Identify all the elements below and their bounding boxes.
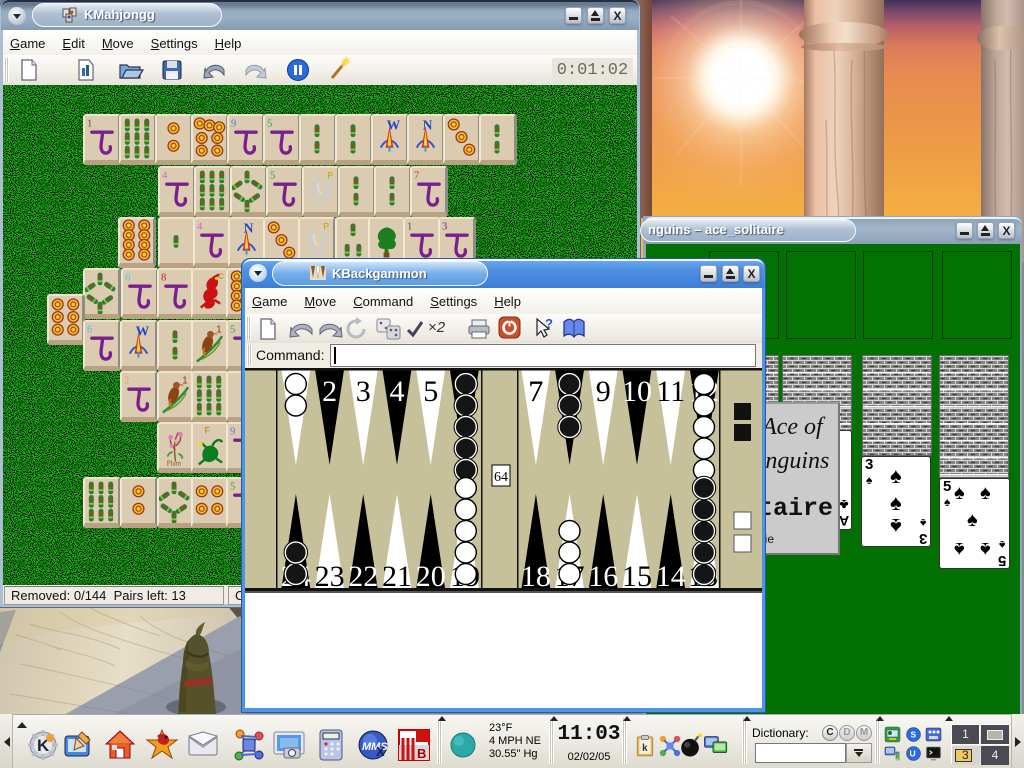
svg-text:C: C (218, 271, 224, 280)
svg-text:W: W (136, 323, 150, 338)
svg-text:U: U (910, 749, 916, 759)
svg-text:6: 6 (125, 271, 131, 283)
svg-text:4: 4 (162, 169, 168, 181)
svg-text:k: k (642, 743, 648, 754)
svg-text:7: 7 (414, 169, 420, 181)
svg-text:Plum: Plum (167, 460, 182, 467)
svg-text:5: 5 (423, 375, 438, 408)
svg-text:5: 5 (230, 323, 235, 335)
svg-text:N: N (423, 117, 433, 132)
svg-text:4: 4 (197, 220, 203, 232)
svg-text:18: 18 (521, 560, 551, 591)
svg-text:5: 5 (267, 117, 272, 129)
svg-text:P: P (323, 221, 329, 231)
svg-text:21: 21 (382, 560, 412, 591)
svg-text:1: 1 (87, 117, 92, 129)
svg-text:10: 10 (622, 375, 652, 408)
svg-text:23: 23 (315, 560, 345, 591)
svg-text:14: 14 (656, 560, 686, 591)
svg-text:4: 4 (390, 375, 405, 408)
svg-text:6: 6 (87, 323, 93, 335)
svg-text:S: S (911, 730, 917, 740)
svg-text:?: ? (545, 316, 553, 331)
svg-text:20: 20 (416, 560, 446, 591)
svg-text:9: 9 (596, 375, 611, 408)
svg-text:3: 3 (356, 375, 371, 408)
svg-text:11: 11 (656, 375, 685, 408)
svg-text:B: B (417, 746, 426, 761)
svg-text:5: 5 (270, 169, 275, 181)
svg-text:2: 2 (124, 374, 129, 386)
svg-text:P: P (327, 170, 333, 180)
svg-text:5: 5 (230, 480, 235, 492)
svg-text:9: 9 (230, 425, 235, 437)
svg-text:7: 7 (528, 375, 543, 408)
svg-text:22: 22 (348, 560, 378, 591)
svg-text:W: W (387, 117, 401, 132)
svg-text:1: 1 (407, 220, 412, 232)
svg-text:3: 3 (442, 220, 447, 232)
svg-text:8: 8 (161, 271, 166, 283)
svg-text:X: X (376, 744, 385, 759)
svg-text:N: N (244, 220, 254, 235)
svg-text:15: 15 (622, 560, 652, 591)
svg-text:64: 64 (494, 470, 508, 485)
svg-text:16: 16 (588, 560, 618, 591)
svg-text:F: F (205, 425, 210, 435)
svg-text:2: 2 (322, 375, 337, 408)
svg-text:9: 9 (231, 117, 236, 129)
